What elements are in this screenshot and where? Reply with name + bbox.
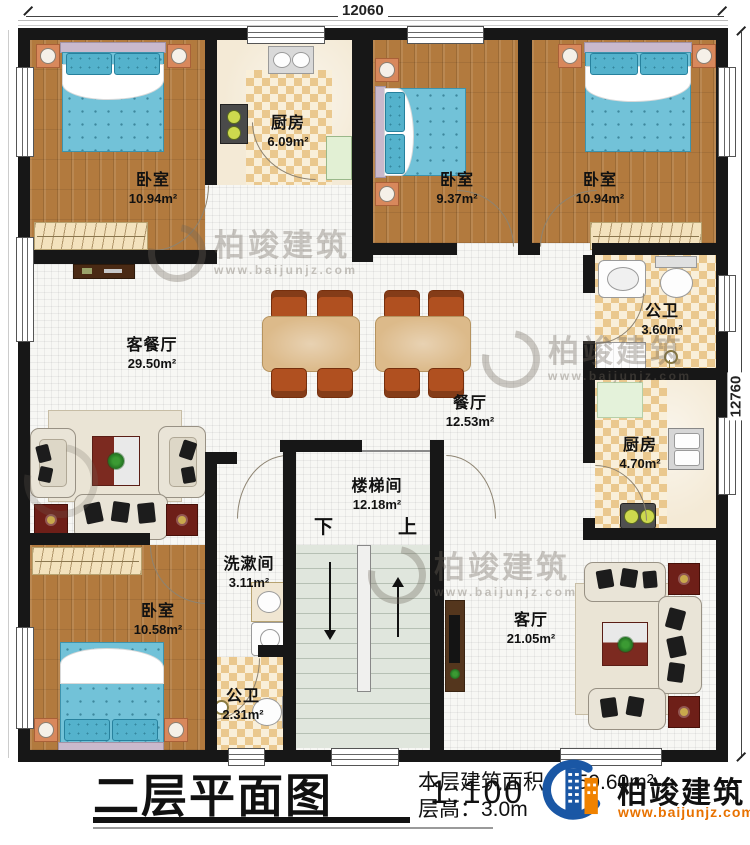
plant [618,637,633,652]
room-label-washroom: 洗漱间3.11m² [223,556,274,591]
watermark [24,444,98,518]
bed-pillow [590,53,638,75]
stair-arrow-down-head [324,630,336,640]
room-label-stairwell: 楼梯间12.18m² [351,478,402,513]
room-label-kitchen-top: 厨房6.09m² [267,115,308,150]
throw-pillow [642,570,657,588]
nightstand [167,44,191,68]
sink-basin [674,433,700,449]
bed-pillow [385,92,405,132]
window [16,237,34,342]
stove-burner [227,110,241,124]
eave-line [8,30,9,758]
throw-pillow [111,501,131,523]
bed-pillow [114,53,160,75]
wardrobe [34,222,148,250]
nightstand [558,44,582,68]
bed-sheet [60,648,164,684]
throw-pillow [181,466,197,484]
room-label-living-room: 客厅21.05m² [507,612,555,647]
wall [283,452,296,750]
toilet-tank [655,256,697,268]
window [16,627,34,729]
plant [108,453,124,469]
fridge [326,136,352,180]
title-underline-thick [93,817,410,823]
watermark-logo-icon [357,535,438,616]
wall [373,243,457,255]
sofa [584,562,666,602]
coffee-table [602,622,648,666]
side-table [166,504,198,536]
tv [449,615,460,663]
sink-basin [257,591,281,613]
room-label-bath-lower: 公卫2.31m² [222,688,263,723]
throw-pillow [625,696,644,717]
floor-height-value: 3.0m [481,798,528,821]
wall [532,243,540,255]
title-underline-thin [93,827,493,829]
nightstand [164,718,188,742]
sideboard [73,264,135,279]
dining-table [375,316,471,372]
room-label-bedroom-top-mid: 卧室9.37m² [436,172,477,207]
eave-line [18,25,728,26]
bed-pillow [112,719,158,741]
throw-pillow [137,502,156,524]
dimension-tick [23,6,33,16]
toilet [653,256,699,298]
toilet-bowl [660,268,693,298]
dimension-right-value: 12760 [727,373,744,421]
wall [205,645,213,657]
watermark-logo-icon [9,429,112,532]
stove [220,104,248,144]
wall [592,243,716,255]
watermark: 柏竣建筑www.baijunjz.com [368,546,578,604]
window [331,748,399,766]
nightstand [375,58,399,82]
side-table [668,563,700,595]
floor-plan-sheet: 12060 12760 下 上 [0,0,750,845]
wall [518,40,532,255]
sink-basin [273,52,291,68]
window [407,26,484,44]
nightstand [34,718,58,742]
watermark: 柏竣建筑www.baijunjz.com [482,330,692,388]
decor-item [104,269,122,273]
throw-pillow [600,697,618,718]
nightstand [375,182,399,206]
sink-basin [674,450,700,466]
kitchen-sink [668,428,704,470]
wall [18,533,150,545]
wall [18,28,728,40]
plant [450,669,460,679]
stair-up-label: 上 [398,512,417,539]
sofa [588,688,666,730]
throw-pillow [665,607,687,631]
brand-logo-icon [533,758,615,832]
wardrobe [32,547,142,575]
room-label-bedroom-top-right: 卧室10.94m² [576,172,624,207]
bed-pillow [385,134,405,174]
throw-pillow [666,635,687,658]
room-label-dining: 餐厅12.53m² [446,395,494,430]
throw-pillow [620,568,639,588]
nightstand [692,44,716,68]
dining-chair [428,368,464,398]
floor-height-row: 层高：3.0m [418,793,528,823]
decor-item [82,268,92,274]
armchair [158,426,206,498]
dimension-top-value: 12060 [338,2,388,19]
sink-basin [607,267,639,291]
wall [258,645,283,657]
window [247,26,325,44]
wall [205,452,217,750]
throw-pillow [667,662,685,683]
room-label-bedroom-bot-left: 卧室10.58m² [134,603,182,638]
floor-height-label: 层高： [418,798,481,821]
coffee-table [92,436,140,486]
wall [280,440,362,452]
eave-line [18,20,728,21]
throw-pillow [596,569,615,590]
tv-cabinet [445,600,465,692]
wall [217,452,237,464]
nightstand [36,44,60,68]
brand-logo [533,758,615,837]
watermark: 柏竣建筑www.baijunjz.com [148,224,358,282]
dimension-tick [717,6,727,16]
wall [205,40,217,185]
stair-door-line [362,450,430,452]
window [16,67,34,157]
wall [583,255,595,293]
dining-chair [384,368,420,398]
window [718,275,736,332]
kitchen-sink [268,46,314,74]
stove-burner [227,126,241,140]
dining-chair [317,368,353,398]
bed-pillow [64,719,110,741]
window [718,417,736,495]
room-label-living-dining: 客餐厅29.50m² [126,337,177,372]
bed-pillow [640,53,688,75]
stair-arrow-down [329,562,331,632]
room-label-kitchen-right: 厨房4.70m² [619,437,660,472]
sink-basin [292,52,310,68]
sofa [658,596,702,694]
dining-chair [271,368,307,398]
brand-website: www.baijunjz.com [618,804,750,820]
side-table [668,696,700,728]
window [718,67,736,157]
stair-down-label: 下 [314,512,333,539]
dining-table [262,316,360,372]
wall [583,528,716,540]
bed-pillow [66,53,112,75]
watermark-logo-icon [471,319,552,400]
watermark-logo-icon [137,213,218,294]
room-label-bedroom-top-left: 卧室10.94m² [129,172,177,207]
